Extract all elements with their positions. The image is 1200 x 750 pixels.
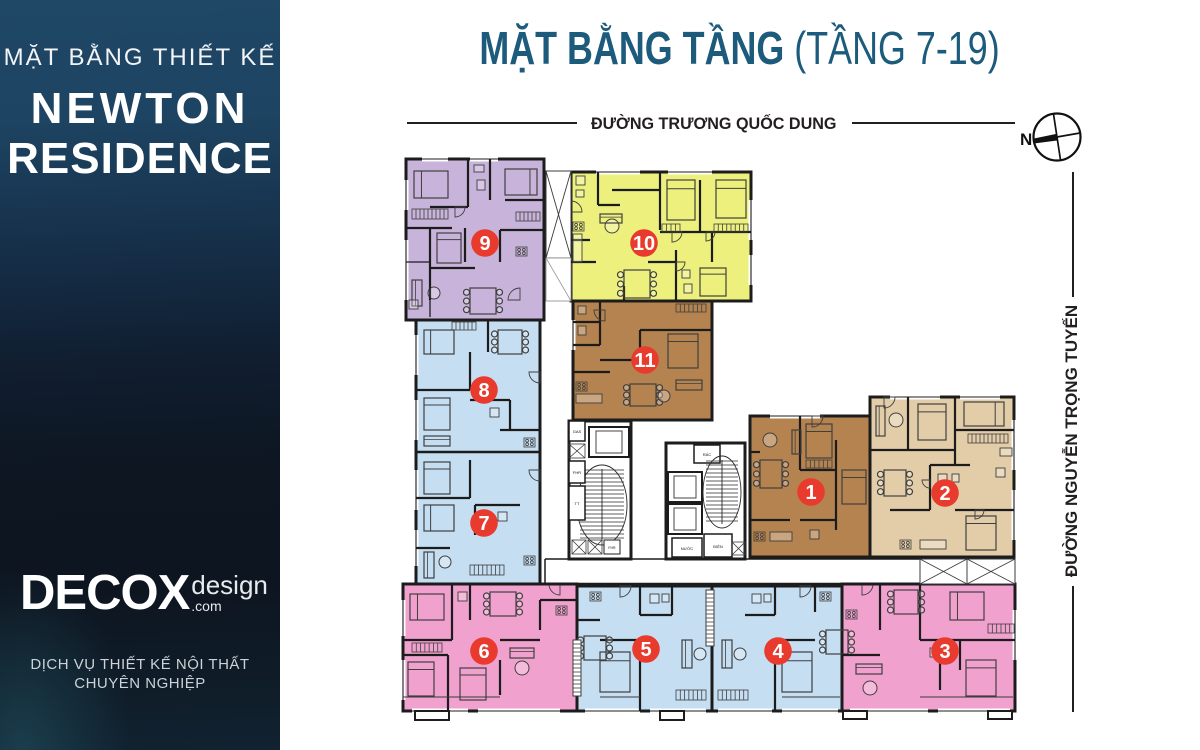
svg-text:FHR: FHR — [608, 546, 616, 550]
svg-text:7: 7 — [478, 513, 489, 535]
svg-text:10: 10 — [633, 233, 655, 255]
svg-text:N: N — [1020, 130, 1032, 149]
svg-text:RÁC: RÁC — [703, 452, 712, 457]
svg-text:8: 8 — [478, 380, 489, 402]
svg-text:9: 9 — [479, 233, 490, 255]
svg-text:NƯỚC: NƯỚC — [681, 546, 694, 551]
svg-text:2: 2 — [939, 483, 950, 505]
svg-text:3: 3 — [939, 641, 950, 663]
svg-text:5: 5 — [640, 639, 651, 661]
svg-text:1: 1 — [805, 482, 816, 504]
svg-text:FHR: FHR — [573, 470, 581, 475]
svg-text:TT: TT — [575, 501, 580, 506]
svg-text:4: 4 — [772, 641, 784, 663]
svg-text:11: 11 — [634, 350, 655, 372]
svg-text:6: 6 — [478, 641, 489, 663]
svg-text:ĐIỆN: ĐIỆN — [713, 544, 723, 549]
svg-text:GAS: GAS — [573, 429, 582, 434]
